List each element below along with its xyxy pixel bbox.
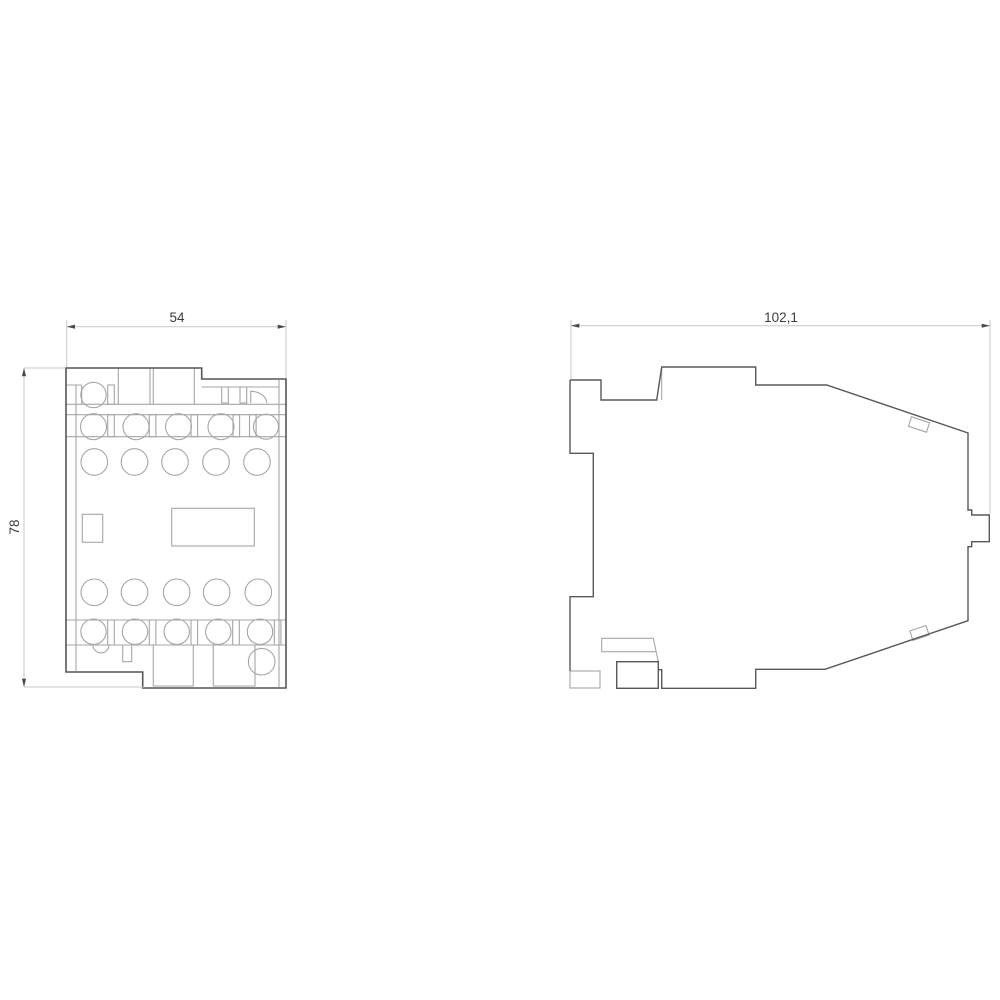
separator-slot — [108, 385, 115, 404]
clamp-screw — [121, 449, 148, 476]
separator-slot — [149, 415, 156, 437]
arrowhead-right-icon — [982, 324, 990, 328]
clamp-screw — [163, 579, 190, 606]
clamp-screw — [244, 449, 271, 476]
separator-slot — [191, 620, 198, 645]
terminal-screw — [123, 414, 149, 440]
separator-slot — [240, 387, 247, 403]
quarter-screw-arc — [251, 391, 267, 403]
bottom-notch — [123, 645, 132, 662]
separator-slot — [108, 620, 115, 645]
terminal-screw — [208, 414, 234, 440]
terminal-screw — [122, 619, 147, 644]
side-view-details — [570, 367, 930, 688]
side-view-outline-group — [570, 367, 989, 688]
left-foot — [570, 671, 600, 688]
small-window — [82, 514, 102, 542]
side-view-outline — [570, 367, 989, 688]
separator-slot — [108, 415, 115, 437]
arrowhead-right-icon — [278, 325, 286, 329]
clamp-screw — [81, 449, 108, 476]
dimension-side-width: 102,1 — [571, 310, 990, 514]
din-rail-hook — [602, 638, 659, 661]
clamp-screw — [245, 579, 272, 606]
drawing-page: 54 78 102,1 — [0, 0, 1000, 1000]
front-view-details — [66, 368, 286, 687]
arrowhead-top-icon — [22, 368, 26, 376]
arrowhead-left-icon — [571, 324, 579, 328]
dimensions: 54 78 102,1 — [7, 310, 990, 687]
bottom-corner-screw — [248, 648, 275, 675]
separator-slot — [149, 620, 156, 645]
dimension-lines — [24, 368, 145, 687]
dimension-lines — [67, 320, 286, 378]
clamp-screw — [203, 449, 230, 476]
side-width-label: 102,1 — [764, 310, 798, 325]
separator-slot — [274, 620, 281, 645]
terminal-screw — [166, 414, 192, 440]
arrowhead-left-icon — [67, 325, 75, 329]
slope-latch-bottom — [910, 626, 929, 641]
terminal-screw — [247, 619, 272, 644]
dimension-lines — [571, 320, 990, 514]
side-view-left-profile — [570, 380, 593, 671]
clamp-screw — [203, 579, 230, 606]
top-towers — [118, 368, 194, 404]
bottom-foot — [153, 645, 193, 686]
terminal-screw — [254, 414, 279, 439]
front-view-outline — [66, 368, 286, 688]
clamp-screw — [162, 449, 189, 476]
separator-slot — [233, 620, 240, 645]
nameplate-window — [172, 508, 255, 546]
side-view — [570, 367, 989, 688]
top-left-notch — [66, 385, 82, 404]
bottom-clip-block — [617, 662, 659, 689]
terminal-screw — [81, 414, 107, 440]
terminal-screw — [206, 619, 231, 644]
separator-slot — [222, 387, 229, 403]
front-width-label: 54 — [169, 310, 185, 325]
front-view — [66, 368, 286, 688]
clamp-screw — [121, 579, 148, 606]
bottom-semicircle — [93, 645, 109, 653]
clamp-screw — [81, 579, 108, 606]
front-height-label: 78 — [7, 519, 22, 534]
terminal-screw — [164, 619, 189, 644]
technical-drawing-canvas: 54 78 102,1 — [0, 0, 1000, 1000]
arrowhead-bottom-icon — [22, 679, 26, 687]
terminal-screw — [81, 619, 106, 644]
